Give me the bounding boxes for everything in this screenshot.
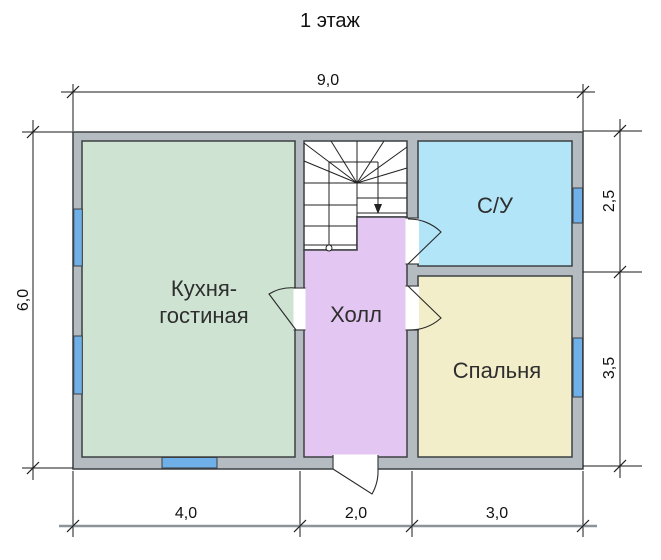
- kitchen-label-line1: Кухня-: [171, 276, 237, 301]
- dimension-bottom: 4,0 2,0 3,0: [59, 471, 597, 537]
- floor-plan: 1 этаж: [0, 0, 661, 560]
- hall-label: Холл: [330, 302, 382, 327]
- dimension-left: 6,0: [15, 120, 73, 480]
- window-bedroom-right: [573, 338, 583, 397]
- dimension-top: 9,0: [61, 72, 595, 131]
- bedroom-label: Спальня: [453, 358, 541, 383]
- bathroom-label: С/У: [477, 193, 514, 218]
- entrance-door-opening: [333, 455, 378, 471]
- window-kitchen-bottom: [162, 458, 217, 469]
- dimension-top-value: 9,0: [317, 72, 339, 89]
- dimension-right-top-value: 2,5: [601, 190, 618, 212]
- bedroom-door-opening: [406, 286, 420, 330]
- dimension-right-bottom-value: 3,5: [601, 357, 618, 379]
- bathroom-door-opening: [406, 218, 420, 264]
- dimension-left-value: 6,0: [15, 289, 32, 311]
- window-kitchen-left-upper: [74, 209, 83, 266]
- dimension-bottom-middle-value: 2,0: [345, 505, 367, 522]
- dimension-bottom-left-value: 4,0: [175, 505, 197, 522]
- kitchen-door-opening: [294, 288, 306, 330]
- window-bathroom-right: [573, 188, 583, 223]
- dimension-right: 2,5 3,5: [583, 119, 642, 478]
- floor-plan-page: 1 этаж: [0, 0, 661, 560]
- page-title: 1 этаж: [300, 10, 361, 32]
- window-kitchen-left-lower: [74, 336, 83, 394]
- room-hall: [304, 217, 407, 457]
- kitchen-label-line2: гостиная: [159, 303, 248, 328]
- dimension-bottom-right-value: 3,0: [486, 505, 508, 522]
- entrance-door-swing: [333, 469, 378, 494]
- stair-start-circle: [326, 245, 332, 251]
